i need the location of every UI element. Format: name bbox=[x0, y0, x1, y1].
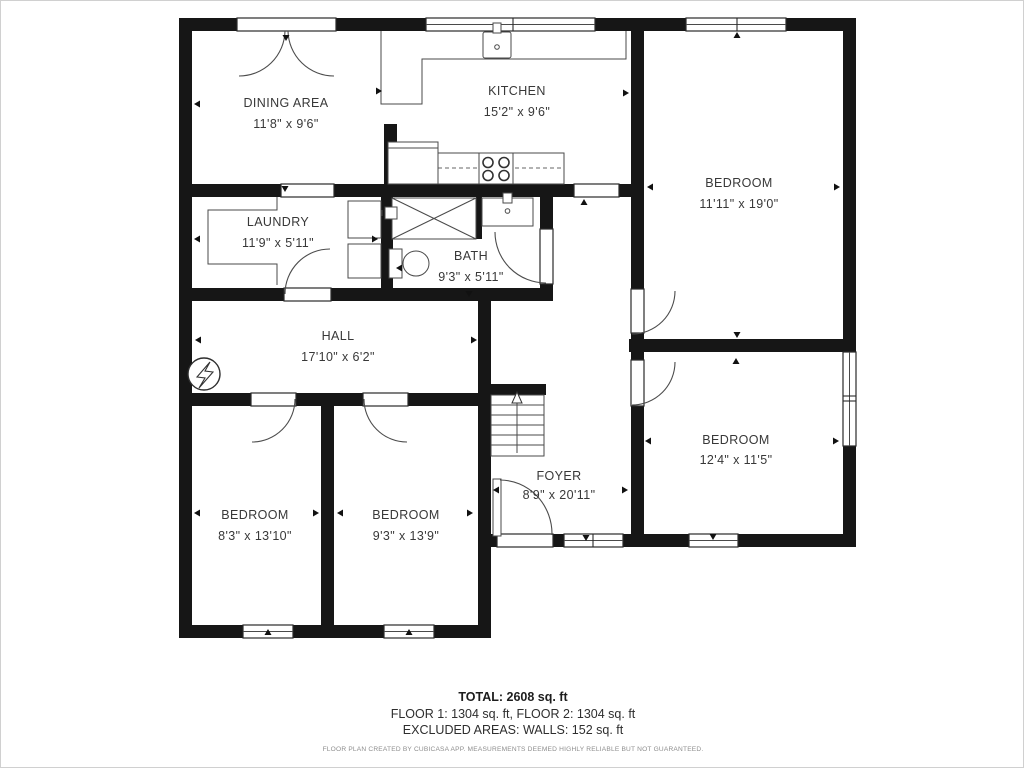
bath-sink-icon bbox=[482, 193, 533, 226]
room-label-bedroom-mid-right-dims: 12'4" x 11'5" bbox=[700, 453, 773, 467]
room-label-hall-dims: 17'10" x 6'2" bbox=[301, 350, 375, 364]
area-summary: TOTAL: 2608 sq. ft FLOOR 1: 1304 sq. ft,… bbox=[323, 690, 704, 753]
room-label-dining-dims: 11'8" x 9'6" bbox=[253, 117, 318, 131]
bedroom-top-right-door bbox=[631, 289, 675, 334]
bedroom-mid-right-door bbox=[631, 360, 675, 406]
floor-plan-page: DINING AREA 11'8" x 9'6" KITCHEN 15'2" x… bbox=[0, 0, 1024, 768]
kitchen-window bbox=[426, 18, 595, 31]
room-label-bedroom-mid-right-name: BEDROOM bbox=[702, 433, 769, 447]
stairs-up-arrow bbox=[512, 392, 522, 453]
excluded-areas-text: EXCLUDED AREAS: WALLS: 152 sq. ft bbox=[403, 723, 624, 737]
room-label-bedroom-bottom-left-name: BEDROOM bbox=[221, 508, 288, 522]
disclaimer-text: FLOOR PLAN CREATED BY CUBICASA APP. MEAS… bbox=[323, 746, 704, 753]
toilet-icon bbox=[389, 249, 429, 278]
floor-plan-canvas: DINING AREA 11'8" x 9'6" KITCHEN 15'2" x… bbox=[1, 1, 1024, 768]
bedroom-bottom-left-door bbox=[251, 393, 296, 442]
dryer-icon bbox=[348, 244, 381, 278]
bedroom-top-window bbox=[686, 18, 786, 31]
room-label-bath-dims: 9'3" x 5'11" bbox=[438, 270, 503, 284]
room-label-foyer-name: FOYER bbox=[536, 469, 581, 483]
stove-icon bbox=[479, 153, 513, 184]
room-label-laundry-name: LAUNDRY bbox=[247, 215, 310, 229]
dining-double-door bbox=[237, 18, 336, 76]
room-label-bath-name: BATH bbox=[454, 249, 488, 263]
room-label-laundry-dims: 11'9" x 5'11" bbox=[242, 236, 314, 250]
room-label-bedroom-bottom-mid-dims: 9'3" x 13'9" bbox=[373, 529, 439, 543]
bedroom-bottom-mid-door bbox=[363, 393, 408, 442]
shower-icon bbox=[382, 198, 476, 239]
bedroom-mid-right-window bbox=[843, 352, 856, 446]
staircase bbox=[491, 392, 544, 456]
total-area-text: TOTAL: 2608 sq. ft bbox=[458, 690, 568, 704]
dining-laundry-opening bbox=[281, 184, 334, 197]
floor-areas-text: FLOOR 1: 1304 sq. ft, FLOOR 2: 1304 sq. … bbox=[391, 707, 636, 721]
room-label-foyer-dims: 8'9" x 20'11" bbox=[523, 488, 596, 502]
room-label-bedroom-top-right-dims: 11'11" x 19'0" bbox=[699, 197, 778, 211]
room-label-bedroom-top-right-name: BEDROOM bbox=[705, 176, 772, 190]
room-label-bedroom-bottom-left-dims: 8'3" x 13'10" bbox=[218, 529, 292, 543]
room-label-kitchen-dims: 15'2" x 9'6" bbox=[484, 105, 550, 119]
fixtures bbox=[188, 23, 626, 390]
room-label-hall-name: HALL bbox=[322, 329, 355, 343]
room-label-bedroom-bottom-mid-name: BEDROOM bbox=[372, 508, 439, 522]
foyer-window bbox=[564, 534, 623, 547]
room-label-kitchen-name: KITCHEN bbox=[488, 84, 546, 98]
washer-icon bbox=[348, 201, 381, 238]
kitchen-foyer-opening bbox=[574, 184, 619, 197]
fridge-icon bbox=[388, 142, 438, 184]
electrical-panel-icon bbox=[188, 358, 220, 390]
room-label-dining-name: DINING AREA bbox=[244, 96, 329, 110]
laundry-door bbox=[284, 249, 331, 301]
